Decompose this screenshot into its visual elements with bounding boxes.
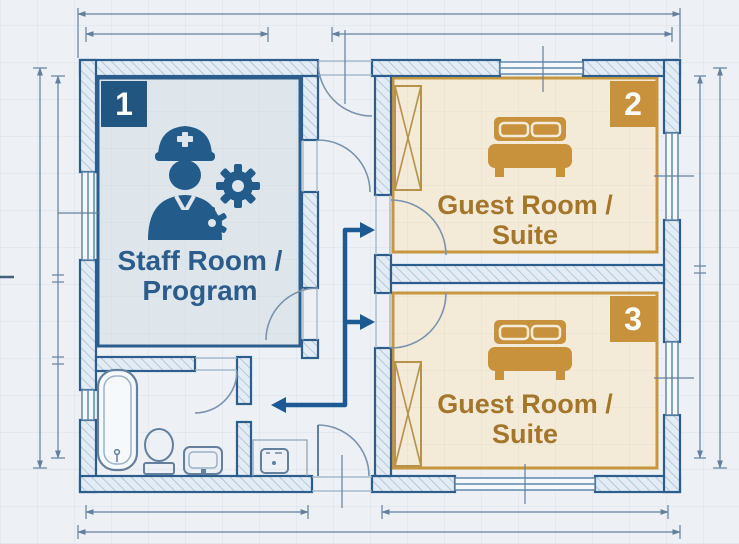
window-right-upper	[654, 133, 694, 220]
window-left-upper	[58, 172, 98, 260]
bathroom-fixtures	[98, 370, 307, 476]
floor-plan-drawing	[0, 0, 739, 544]
double-bed-icon-room-2	[488, 117, 572, 177]
room-3-badge-box	[610, 296, 656, 342]
sink-icon	[184, 447, 222, 475]
window-bottom	[455, 464, 595, 504]
window-left-lower	[82, 390, 94, 420]
bathroom-door-arc	[195, 371, 237, 413]
arrow-to-guest-room-2	[360, 222, 375, 238]
arrow-to-bathroom-area	[271, 397, 286, 413]
arrow-to-guest-room-3	[360, 314, 375, 330]
double-bed-icon-room-3	[488, 320, 572, 380]
room-1-badge-box	[101, 81, 147, 127]
toilet-icon	[144, 429, 174, 474]
staff-room-upper-door-arc	[318, 140, 370, 192]
room-2-badge-box	[610, 81, 656, 127]
window-right-lower	[654, 342, 694, 415]
bottom-entrance-door-arc	[318, 425, 369, 476]
floor-plan-canvas: 1 2 3 Staff Room / Program Guest Room / …	[0, 0, 739, 544]
bathtub-icon	[98, 370, 137, 470]
washer-icon	[261, 449, 288, 473]
gear-icon-large	[216, 164, 260, 208]
